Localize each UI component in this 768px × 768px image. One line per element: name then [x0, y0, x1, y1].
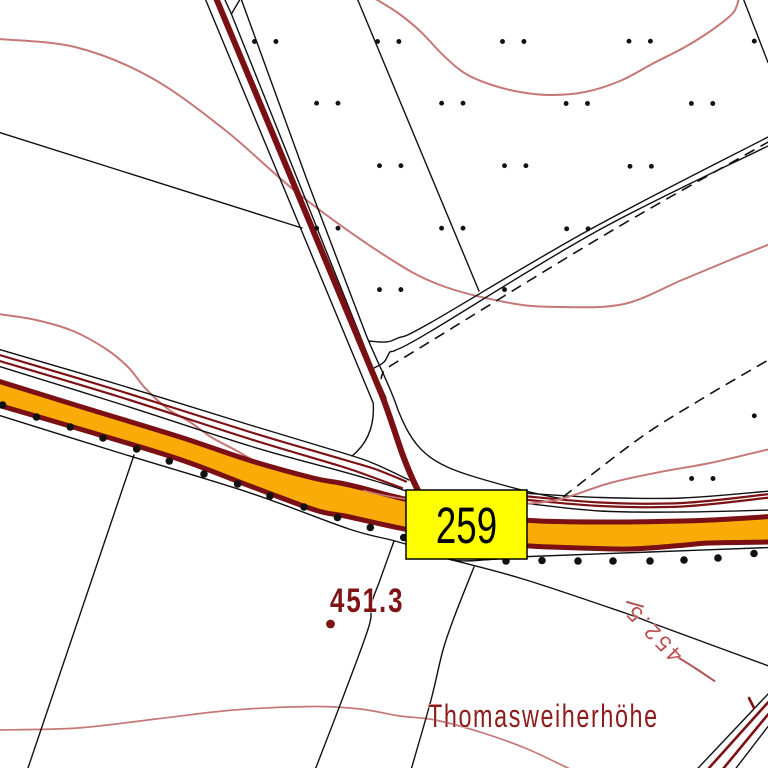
svg-text:451.3: 451.3 [330, 583, 405, 620]
svg-text:Thomasweiherhöhe: Thomasweiherhöhe [428, 697, 659, 734]
svg-text:259: 259 [436, 498, 497, 554]
